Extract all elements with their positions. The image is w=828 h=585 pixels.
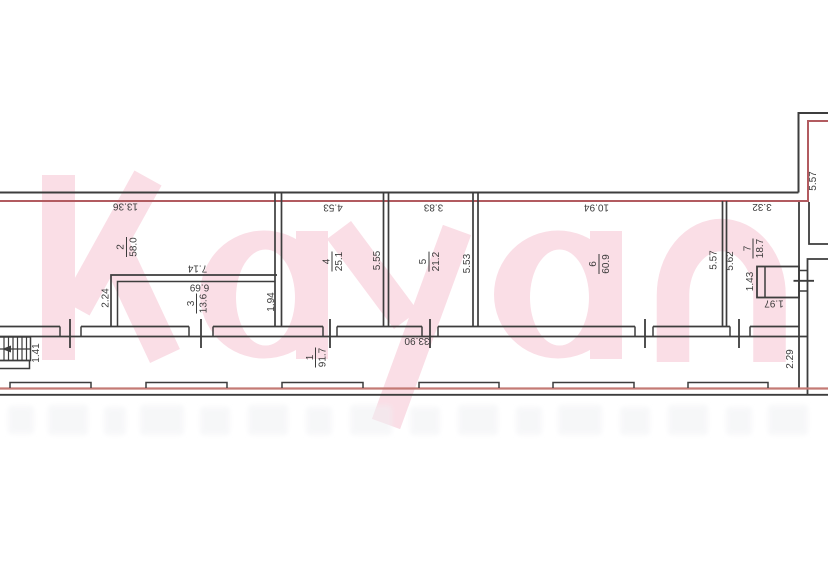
svg-text:91.7: 91.7 bbox=[318, 347, 329, 367]
svg-text:21.2: 21.2 bbox=[431, 251, 442, 271]
svg-text:3.83: 3.83 bbox=[423, 202, 443, 213]
svg-text:33.90: 33.90 bbox=[404, 335, 429, 346]
svg-text:13.6: 13.6 bbox=[199, 293, 210, 313]
svg-text:3: 3 bbox=[186, 300, 197, 306]
svg-text:10.94: 10.94 bbox=[584, 202, 609, 213]
svg-text:58.0: 58.0 bbox=[129, 237, 140, 257]
svg-text:5.57: 5.57 bbox=[709, 250, 720, 270]
svg-text:25.1: 25.1 bbox=[334, 251, 345, 271]
svg-text:5.62: 5.62 bbox=[725, 251, 736, 271]
svg-text:1.97: 1.97 bbox=[764, 298, 784, 309]
svg-text:2.24: 2.24 bbox=[101, 288, 112, 308]
svg-text:5: 5 bbox=[418, 258, 429, 264]
svg-text:1: 1 bbox=[305, 354, 316, 360]
svg-text:18.7: 18.7 bbox=[755, 238, 766, 258]
svg-text:2.29: 2.29 bbox=[785, 349, 796, 369]
svg-text:13.36: 13.36 bbox=[113, 201, 138, 212]
svg-text:1.94: 1.94 bbox=[266, 292, 277, 312]
svg-text:5.57: 5.57 bbox=[808, 171, 819, 191]
svg-text:5.55: 5.55 bbox=[372, 250, 383, 270]
svg-text:1.43: 1.43 bbox=[745, 271, 756, 291]
svg-text:2: 2 bbox=[116, 244, 127, 250]
svg-text:1.41: 1.41 bbox=[31, 343, 42, 363]
svg-text:7.14: 7.14 bbox=[187, 263, 207, 274]
svg-text:6: 6 bbox=[588, 261, 599, 267]
svg-text:4.53: 4.53 bbox=[323, 202, 343, 213]
svg-text:6.69: 6.69 bbox=[189, 282, 209, 293]
svg-text:7: 7 bbox=[743, 245, 754, 251]
svg-text:5.53: 5.53 bbox=[462, 253, 473, 273]
svg-text:3.32: 3.32 bbox=[752, 201, 772, 212]
svg-text:60.9: 60.9 bbox=[601, 254, 612, 274]
svg-text:4: 4 bbox=[322, 258, 333, 264]
